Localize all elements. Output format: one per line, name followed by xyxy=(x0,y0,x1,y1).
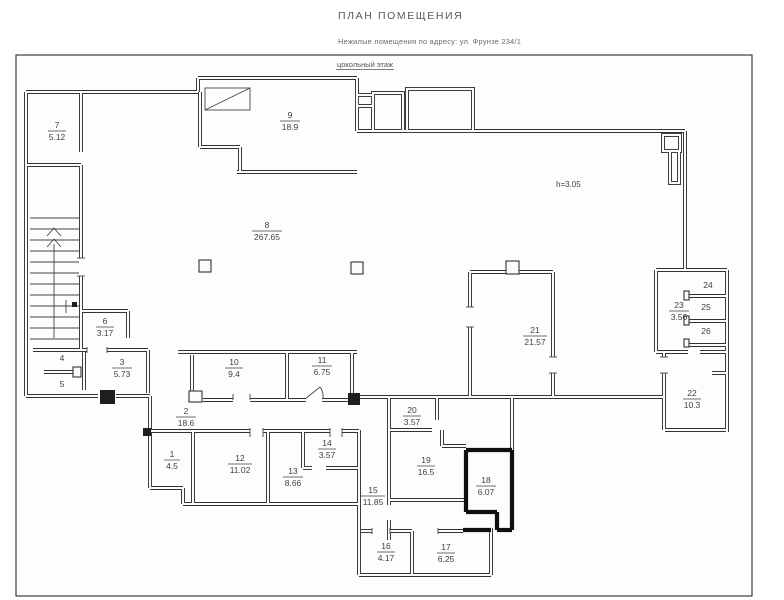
room-area: 21.57 xyxy=(524,337,546,347)
floor-plan-scan: ПЛАН ПОМЕЩЕНИЯ Нежилые помещения по адре… xyxy=(0,0,784,600)
room-area: 11.02 xyxy=(230,465,251,475)
room-area: 16.5 xyxy=(418,467,435,477)
room-area: 4.5 xyxy=(166,461,178,471)
room-area: 3.56 xyxy=(671,312,688,322)
ceiling-height-label: h=3.05 xyxy=(556,180,581,189)
room-area: 5.73 xyxy=(114,369,131,379)
room-area: 6.07 xyxy=(478,487,495,497)
room-number: 16 xyxy=(381,541,391,551)
room-number: 15 xyxy=(368,485,378,495)
wc-stall-post-1 xyxy=(684,291,689,300)
room-area: 4.17 xyxy=(378,553,395,563)
floor-label: цокольный этаж xyxy=(336,60,394,70)
room-number: 2 xyxy=(184,406,189,416)
room5-door-post xyxy=(73,367,81,377)
south-west-pillar xyxy=(100,390,115,404)
room-area: 5.12 xyxy=(49,132,66,142)
plan-subtitle: Нежилые помещения по адресу: ул. Фрунзе … xyxy=(338,37,521,46)
corridor-wall-nub xyxy=(143,428,151,436)
scanned-floor-plan-page: ПЛАН ПОМЕЩЕНИЯ Нежилые помещения по адре… xyxy=(0,0,784,600)
room-number: 5 xyxy=(60,379,65,389)
room-number: 10 xyxy=(229,357,239,367)
room-number: 21 xyxy=(530,325,540,335)
room-area: 267.65 xyxy=(254,232,280,242)
room-area: 6.25 xyxy=(438,554,455,564)
hall-column-west xyxy=(199,260,211,272)
room-number: 3 xyxy=(120,357,125,367)
room-number: 18 xyxy=(481,475,491,485)
room-number: 11 xyxy=(318,355,327,365)
room-area: 3.57 xyxy=(319,450,336,460)
room-number: 26 xyxy=(701,326,711,336)
room-area: 3.57 xyxy=(404,417,421,427)
stair-wall-nub xyxy=(72,302,77,307)
plan-title: ПЛАН ПОМЕЩЕНИЯ xyxy=(338,10,463,22)
room-number: 13 xyxy=(288,466,298,476)
room-number: 6 xyxy=(103,316,108,326)
room-label-24: 24 xyxy=(703,280,713,290)
room-number: 19 xyxy=(421,455,431,465)
room-area: 9.4 xyxy=(228,369,240,379)
room-area: 18.6 xyxy=(178,418,195,428)
room-label-5: 5 xyxy=(60,379,65,389)
room-number: 1 xyxy=(170,449,175,459)
room-label-26: 26 xyxy=(701,326,711,336)
room-area: 18.9 xyxy=(282,122,299,132)
room-area: 6.75 xyxy=(314,367,331,377)
room-number: 7 xyxy=(55,120,60,130)
floor-label-text: цокольный этаж xyxy=(337,60,393,69)
room-number: 20 xyxy=(407,405,417,415)
room-number: 22 xyxy=(687,388,697,398)
room-label-4: 4 xyxy=(60,353,65,363)
room-area: 8.66 xyxy=(285,478,302,488)
room-number: 12 xyxy=(235,453,245,463)
room-number: 4 xyxy=(60,353,65,363)
wc-stall-post-3 xyxy=(684,339,689,347)
room10-corner-post xyxy=(189,391,202,402)
room-number: 17 xyxy=(441,542,451,552)
room-area: 11.85 xyxy=(363,497,384,507)
room-number: 23 xyxy=(674,300,684,310)
room-number: 9 xyxy=(288,110,293,120)
room11-corner-pillar xyxy=(348,393,360,405)
room-number: 8 xyxy=(265,220,270,230)
room-number: 24 xyxy=(703,280,713,290)
room-label-25: 25 xyxy=(701,302,711,312)
room-number: 14 xyxy=(322,438,332,448)
room-area: 3.17 xyxy=(97,328,114,338)
room-number: 25 xyxy=(701,302,711,312)
hall-column-east xyxy=(351,262,363,274)
room21-wall-column xyxy=(506,261,519,274)
room-area: 10.3 xyxy=(684,400,701,410)
